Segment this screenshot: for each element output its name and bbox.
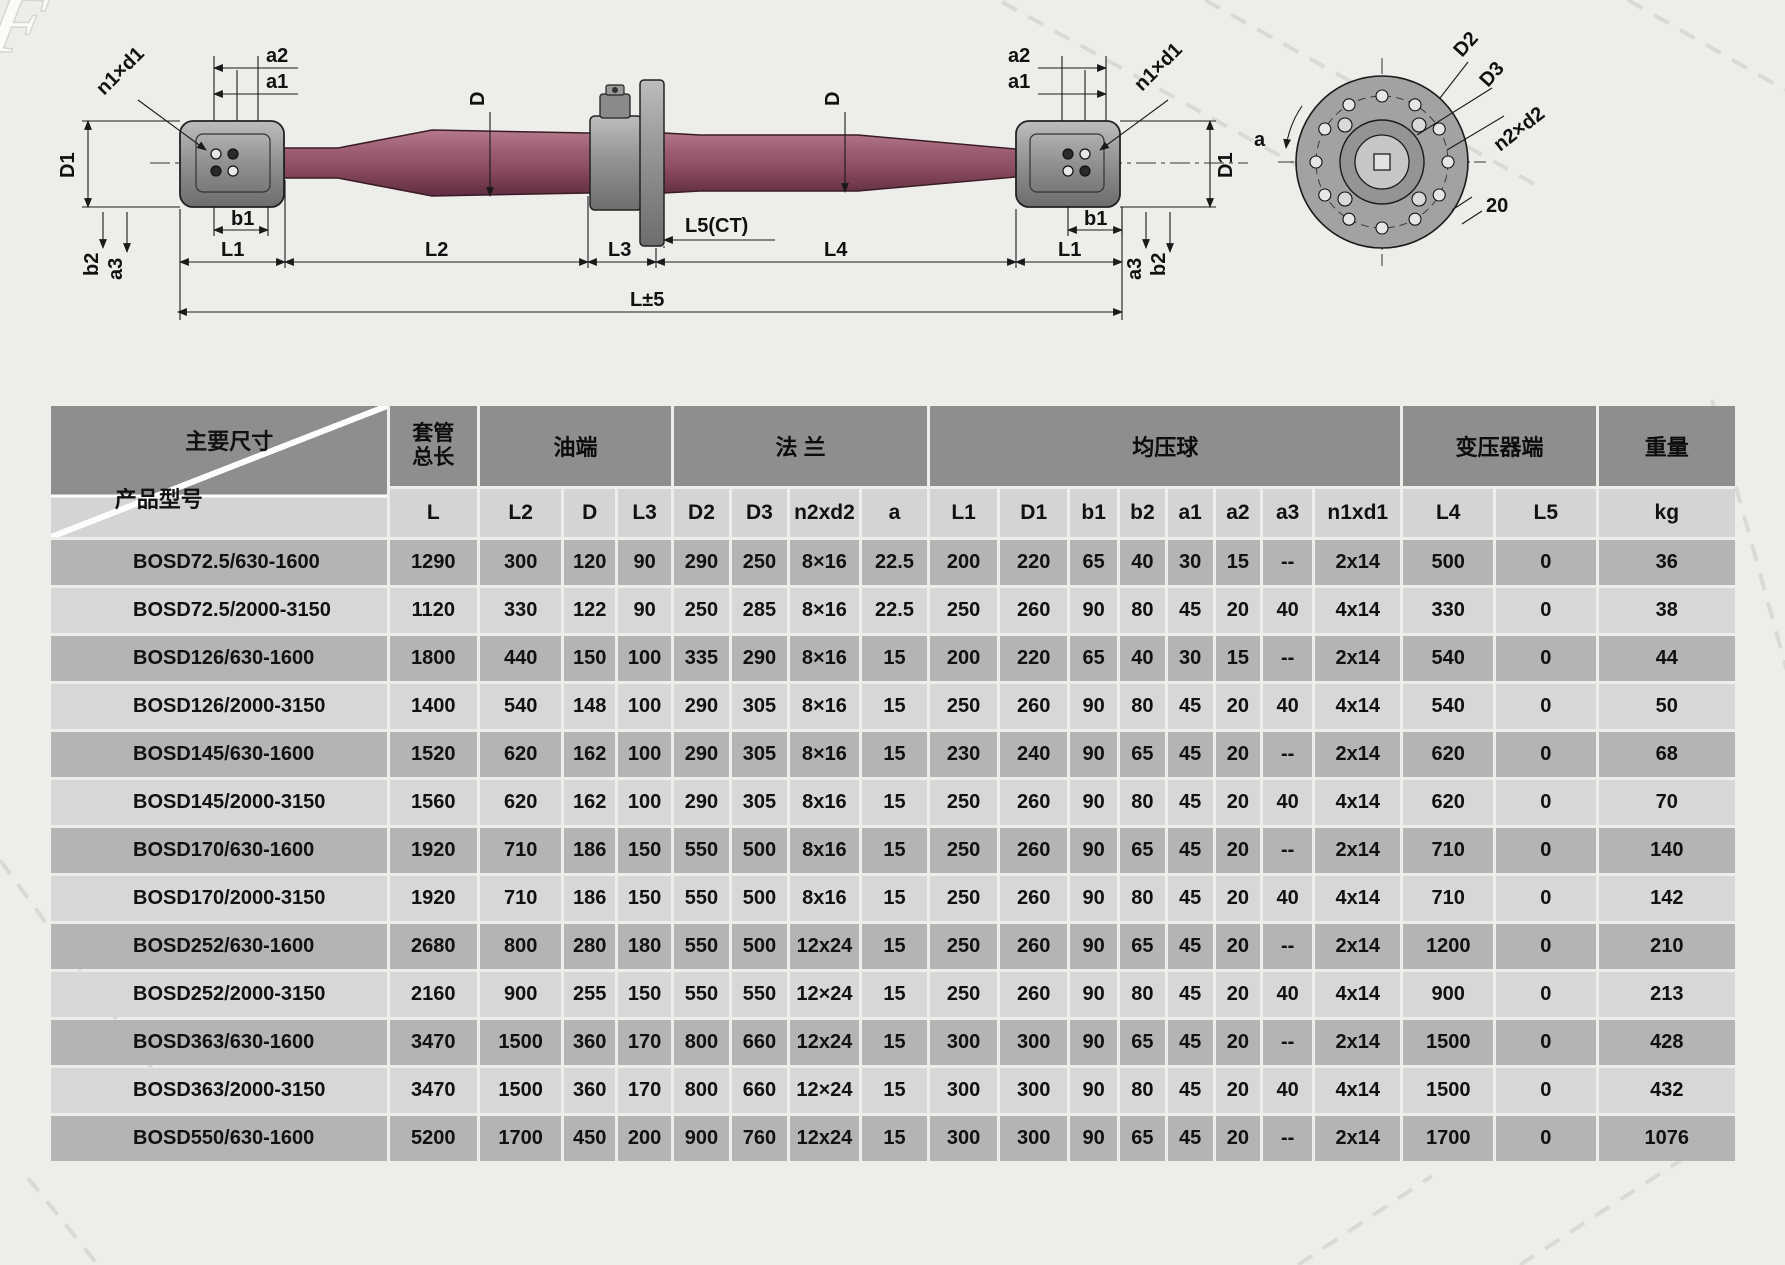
spec-value: -- [1263, 924, 1312, 969]
spec-value: 80 [1120, 1068, 1165, 1113]
spec-value: 4x14 [1315, 972, 1400, 1017]
spec-value: 15 [1216, 540, 1261, 585]
spec-value: 45 [1168, 972, 1213, 1017]
col-header-d: D [564, 489, 615, 537]
col-header-a1: a1 [1168, 489, 1213, 537]
col-header-l: L [390, 489, 477, 537]
spec-value: 90 [1070, 828, 1117, 873]
spec-value: 40 [1263, 972, 1312, 1017]
spec-value: 260 [1000, 924, 1067, 969]
product-model: BOSD126/2000-3150 [51, 684, 387, 729]
spec-value: 660 [732, 1068, 787, 1113]
col-header-l1: L1 [930, 489, 997, 537]
spec-value: 800 [480, 924, 561, 969]
corner-label-product-model: 产品型号 [115, 482, 203, 514]
spec-value: 8x16 [790, 780, 859, 825]
spec-value: 90 [1070, 1020, 1117, 1065]
spec-value: 1120 [390, 588, 477, 633]
spec-value: 22.5 [862, 588, 927, 633]
spec-value: 250 [930, 924, 997, 969]
dim-label-L2: L2 [425, 239, 448, 261]
table-row: BOSD550/630-16005200170045020090076012x2… [51, 1116, 1735, 1161]
product-model: BOSD72.5/2000-3150 [51, 588, 387, 633]
spec-value: 45 [1168, 1020, 1213, 1065]
flange-label-20: 20 [1486, 195, 1508, 217]
spec-value: -- [1263, 540, 1312, 585]
product-model: BOSD145/630-1600 [51, 732, 387, 777]
dim-label-a3-left: a3 [105, 258, 127, 280]
table-row: BOSD126/2000-315014005401481002903058×16… [51, 684, 1735, 729]
spec-value: 65 [1070, 540, 1117, 585]
dim-label-b1-right: b1 [1084, 208, 1107, 230]
product-model: BOSD363/630-1600 [51, 1020, 387, 1065]
spec-value: 12x24 [790, 924, 859, 969]
dim-label-a1-right: a1 [1008, 71, 1030, 93]
spec-value: 900 [1403, 972, 1492, 1017]
spec-value: 150 [564, 636, 615, 681]
spec-value: 40 [1263, 876, 1312, 921]
spec-value: 170 [618, 1068, 671, 1113]
col-header-d2: D2 [674, 489, 729, 537]
spec-value: 100 [618, 636, 671, 681]
spec-value: 260 [1000, 684, 1067, 729]
group-header-flange: 法 兰 [674, 406, 927, 486]
spec-value: -- [1263, 636, 1312, 681]
spec-value: 300 [1000, 1116, 1067, 1161]
spec-value: 45 [1168, 684, 1213, 729]
spec-value: 0 [1496, 684, 1596, 729]
spec-value: 250 [930, 588, 997, 633]
table-row: BOSD252/630-1600268080028018055050012x24… [51, 924, 1735, 969]
spec-value: 1520 [390, 732, 477, 777]
technical-drawing-area: a2 a1 n1×d1 D1 b2 a3 b1 L1 D D L2 L3 L5(… [0, 0, 1785, 395]
spec-value: 5200 [390, 1116, 477, 1161]
spec-value: 620 [1403, 780, 1492, 825]
col-header-l5: L5 [1496, 489, 1596, 537]
terminal-dot [612, 87, 618, 93]
spec-value: 0 [1496, 588, 1596, 633]
col-header-l4: L4 [1403, 489, 1492, 537]
flange-plate [640, 80, 664, 246]
spec-value: 300 [1000, 1068, 1067, 1113]
spec-value: 250 [930, 780, 997, 825]
col-header-l3: L3 [618, 489, 671, 537]
spec-value: 45 [1168, 780, 1213, 825]
spec-value: 550 [674, 828, 729, 873]
spec-value: 305 [732, 684, 787, 729]
spec-value: 80 [1120, 972, 1165, 1017]
spec-value: 550 [674, 924, 729, 969]
spec-value: 710 [1403, 876, 1492, 921]
dim-label-L5CT: L5(CT) [685, 215, 748, 237]
spec-value: 45 [1168, 876, 1213, 921]
spec-value: 40 [1263, 588, 1312, 633]
left-end-block [180, 121, 284, 207]
col-header-d1: D1 [1000, 489, 1067, 537]
spec-value: 1920 [390, 876, 477, 921]
spec-value: 255 [564, 972, 615, 1017]
spec-value: 210 [1599, 924, 1735, 969]
spec-value: 40 [1263, 780, 1312, 825]
spec-value: 20 [1216, 1068, 1261, 1113]
product-model: BOSD170/2000-3150 [51, 876, 387, 921]
spec-value: 0 [1496, 972, 1596, 1017]
spec-value: 15 [862, 684, 927, 729]
spec-value: 360 [564, 1068, 615, 1113]
spec-value: 15 [862, 1116, 927, 1161]
corner-header-cell: 主要尺寸 产品型号 [51, 406, 387, 537]
spec-value: 22.5 [862, 540, 927, 585]
spec-value: 450 [564, 1116, 615, 1161]
spec-value: 290 [732, 636, 787, 681]
spec-value: 2x14 [1315, 828, 1400, 873]
spec-value: 800 [674, 1068, 729, 1113]
spec-value: 220 [1000, 540, 1067, 585]
spec-value: 710 [480, 828, 561, 873]
spec-value: 440 [480, 636, 561, 681]
spec-value: 100 [618, 732, 671, 777]
spec-value: 150 [618, 876, 671, 921]
col-header-b1: b1 [1070, 489, 1117, 537]
spec-value: 500 [732, 924, 787, 969]
spec-value: 335 [674, 636, 729, 681]
spec-value: 8×16 [790, 540, 859, 585]
dim-label-a3-right: a3 [1124, 258, 1146, 280]
spec-value: 45 [1168, 924, 1213, 969]
col-header-b2: b2 [1120, 489, 1165, 537]
spec-value: 150 [618, 972, 671, 1017]
spec-value: 100 [618, 780, 671, 825]
spec-value: 290 [674, 684, 729, 729]
spec-value: 360 [564, 1020, 615, 1065]
spec-value: 2x14 [1315, 636, 1400, 681]
spec-value: 250 [930, 876, 997, 921]
flange-label-D3: D3 [1475, 58, 1508, 92]
spec-value: 15 [862, 780, 927, 825]
datasheet-page: { "page": { "background_color": "#edeeea… [0, 0, 1785, 1265]
spec-value: 68 [1599, 732, 1735, 777]
spec-value: 250 [930, 972, 997, 1017]
spec-value: 120 [564, 540, 615, 585]
spec-value: 300 [930, 1116, 997, 1161]
spec-value: 12x24 [790, 1020, 859, 1065]
spec-value: 15 [862, 636, 927, 681]
spec-value: 250 [930, 684, 997, 729]
table-row: BOSD170/2000-315019207101861505505008x16… [51, 876, 1735, 921]
spec-value: 300 [480, 540, 561, 585]
spec-value: 540 [1403, 636, 1492, 681]
spec-value: 90 [618, 588, 671, 633]
spec-value: -- [1263, 732, 1312, 777]
spec-value: 500 [732, 876, 787, 921]
spec-value: 44 [1599, 636, 1735, 681]
spec-value: 1500 [480, 1068, 561, 1113]
product-model: BOSD170/630-1600 [51, 828, 387, 873]
table-row: BOSD145/630-160015206201621002903058×161… [51, 732, 1735, 777]
spec-value: 8×16 [790, 732, 859, 777]
product-model: BOSD550/630-1600 [51, 1116, 387, 1161]
spec-value: 1700 [1403, 1116, 1492, 1161]
spec-value: 200 [618, 1116, 671, 1161]
spec-value: 620 [480, 780, 561, 825]
spec-value: 1076 [1599, 1116, 1735, 1161]
table-row: BOSD363/630-16003470150036017080066012x2… [51, 1020, 1735, 1065]
spec-value: 290 [674, 780, 729, 825]
spec-value: 162 [564, 780, 615, 825]
spec-value: 0 [1496, 1020, 1596, 1065]
spec-value: 2160 [390, 972, 477, 1017]
spec-value: 2x14 [1315, 924, 1400, 969]
spec-value: 260 [1000, 972, 1067, 1017]
spec-value: 45 [1168, 1116, 1213, 1161]
table-row: BOSD72.5/630-16001290300120902902508×162… [51, 540, 1735, 585]
spec-value: 3470 [390, 1020, 477, 1065]
dim-label-D-left: D [467, 92, 489, 106]
dim-label-n1xd1-right: n1×d1 [1130, 39, 1187, 96]
spec-value: 305 [732, 780, 787, 825]
spec-value: 0 [1496, 1068, 1596, 1113]
spec-value: 305 [732, 732, 787, 777]
spec-value: 20 [1216, 732, 1261, 777]
spec-value: 8×16 [790, 636, 859, 681]
spec-value: 500 [732, 828, 787, 873]
spec-value: 2680 [390, 924, 477, 969]
spec-value: 432 [1599, 1068, 1735, 1113]
spec-value: 710 [1403, 828, 1492, 873]
spec-value: 80 [1120, 684, 1165, 729]
spec-value: 900 [480, 972, 561, 1017]
spec-table-area: 主要尺寸 产品型号 套管 总长 油端 法 兰 均压球 变压器端 重量 LL2DL… [48, 403, 1785, 1164]
spec-value: 90 [1070, 924, 1117, 969]
spec-value: 0 [1496, 636, 1596, 681]
spec-value: 100 [618, 684, 671, 729]
spec-value: 20 [1216, 588, 1261, 633]
spec-value: 250 [674, 588, 729, 633]
spec-value: 2x14 [1315, 732, 1400, 777]
spec-value: 0 [1496, 828, 1596, 873]
spec-value: 90 [1070, 1068, 1117, 1113]
table-row: BOSD72.5/2000-31501120330122902502858×16… [51, 588, 1735, 633]
spec-value: 90 [1070, 876, 1117, 921]
spec-value: 1700 [480, 1116, 561, 1161]
spec-value: 620 [1403, 732, 1492, 777]
spec-value: 0 [1496, 1116, 1596, 1161]
spec-value: 250 [930, 828, 997, 873]
spec-value: 2x14 [1315, 1020, 1400, 1065]
spec-value: 2x14 [1315, 540, 1400, 585]
terminal-box [600, 94, 630, 118]
col-header-n2xd2: n2xd2 [790, 489, 859, 537]
spec-value: 65 [1120, 828, 1165, 873]
spec-value: 300 [930, 1068, 997, 1113]
col-header-a: a [862, 489, 927, 537]
spec-value: 8×16 [790, 684, 859, 729]
spec-value: 1500 [480, 1020, 561, 1065]
spec-value: 65 [1120, 732, 1165, 777]
spec-value: 800 [674, 1020, 729, 1065]
spec-value: 290 [674, 732, 729, 777]
dim-label-L4: L4 [824, 239, 848, 261]
col-header-l2: L2 [480, 489, 561, 537]
spec-value: 90 [1070, 780, 1117, 825]
spec-value: 15 [862, 1068, 927, 1113]
flange-front-view: D2 D3 n2×d2 a 20 [1254, 28, 1549, 266]
group-header-casing-length: 套管 总长 [390, 406, 477, 486]
spec-value: 12×24 [790, 972, 859, 1017]
table-row: BOSD363/2000-31503470150036017080066012×… [51, 1068, 1735, 1113]
spec-value: 540 [1403, 684, 1492, 729]
table-row: BOSD170/630-160019207101861505505008x161… [51, 828, 1735, 873]
flange-sleeve [590, 116, 642, 210]
spec-value: 20 [1216, 780, 1261, 825]
spec-value: 15 [862, 828, 927, 873]
dim-label-a2-right: a2 [1008, 45, 1030, 67]
spec-value: 20 [1216, 972, 1261, 1017]
dim-label-a1-left: a1 [266, 71, 288, 93]
product-model: BOSD252/2000-3150 [51, 972, 387, 1017]
spec-value: 4x14 [1315, 684, 1400, 729]
dim-label-b1-left: b1 [231, 208, 254, 230]
spec-value: 200 [930, 540, 997, 585]
spec-value: 142 [1599, 876, 1735, 921]
spec-value: 300 [930, 1020, 997, 1065]
spec-value: 180 [618, 924, 671, 969]
dim-label-L1-right: L1 [1058, 239, 1081, 261]
spec-value: 80 [1120, 876, 1165, 921]
col-header-n1xd1: n1xd1 [1315, 489, 1400, 537]
group-header-transformer-end: 变压器端 [1403, 406, 1595, 486]
spec-value: 280 [564, 924, 615, 969]
table-row: BOSD126/630-160018004401501003352908×161… [51, 636, 1735, 681]
dim-label-b2-right: b2 [1148, 253, 1170, 276]
dim-label-n1xd1-left: n1×d1 [92, 43, 149, 100]
spec-value: 710 [480, 876, 561, 921]
spec-value: 550 [674, 972, 729, 1017]
spec-value: 1500 [1403, 1068, 1492, 1113]
dim-label-D-right: D [822, 92, 844, 106]
flange-label-a: a [1254, 129, 1266, 151]
spec-value: 20 [1216, 1116, 1261, 1161]
spec-value: 760 [732, 1116, 787, 1161]
flange-center-hole [1374, 154, 1390, 170]
spec-value: 8x16 [790, 828, 859, 873]
spec-value: 0 [1496, 732, 1596, 777]
spec-value: 15 [862, 1020, 927, 1065]
spec-value: 4x14 [1315, 1068, 1400, 1113]
spec-value: 65 [1120, 1116, 1165, 1161]
spec-value: 40 [1120, 540, 1165, 585]
spec-value: 90 [1070, 684, 1117, 729]
spec-value: 40 [1120, 636, 1165, 681]
right-end-block [1016, 121, 1120, 207]
spec-value: 330 [480, 588, 561, 633]
dim-label-a2-left: a2 [266, 45, 288, 67]
spec-value: 30 [1168, 540, 1213, 585]
spec-value: 80 [1120, 780, 1165, 825]
dim-label-L-total: L±5 [630, 289, 664, 311]
product-model: BOSD252/630-1600 [51, 924, 387, 969]
spec-value: 620 [480, 732, 561, 777]
table-row: BOSD252/2000-3150216090025515055055012×2… [51, 972, 1735, 1017]
flange-label-n2xd2: n2×d2 [1490, 103, 1550, 156]
spec-value: 250 [732, 540, 787, 585]
spec-value: 550 [732, 972, 787, 1017]
spec-value: 1800 [390, 636, 477, 681]
product-model: BOSD126/630-1600 [51, 636, 387, 681]
spec-value: 15 [862, 924, 927, 969]
spec-value: 220 [1000, 636, 1067, 681]
spec-value: 8×16 [790, 588, 859, 633]
spec-value: 230 [930, 732, 997, 777]
spec-value: 45 [1168, 732, 1213, 777]
spec-value: 428 [1599, 1020, 1735, 1065]
spec-value: 0 [1496, 540, 1596, 585]
spec-value: 900 [674, 1116, 729, 1161]
spec-value: 162 [564, 732, 615, 777]
spec-value: 15 [862, 972, 927, 1017]
group-header-row: 主要尺寸 产品型号 套管 总长 油端 法 兰 均压球 变压器端 重量 [51, 406, 1735, 486]
spec-value: 70 [1599, 780, 1735, 825]
spec-value: 4x14 [1315, 876, 1400, 921]
spec-value: 8x16 [790, 876, 859, 921]
spec-value: 90 [618, 540, 671, 585]
dim-label-D1-right: D1 [1215, 152, 1237, 178]
spec-value: 15 [1216, 636, 1261, 681]
spec-value: 1400 [390, 684, 477, 729]
spec-value: 122 [564, 588, 615, 633]
spec-value: 20 [1216, 924, 1261, 969]
spec-value: 30 [1168, 636, 1213, 681]
spec-value: 40 [1263, 1068, 1312, 1113]
spec-value: 240 [1000, 732, 1067, 777]
spec-value: 550 [674, 876, 729, 921]
spec-value: 200 [930, 636, 997, 681]
spec-value: 213 [1599, 972, 1735, 1017]
spec-value: 38 [1599, 588, 1735, 633]
spec-value: 285 [732, 588, 787, 633]
spec-value: 150 [618, 828, 671, 873]
spec-value: 170 [618, 1020, 671, 1065]
spec-value: 540 [480, 684, 561, 729]
spec-value: 65 [1120, 1020, 1165, 1065]
spec-value: 4x14 [1315, 780, 1400, 825]
col-header-d3: D3 [732, 489, 787, 537]
spec-value: 65 [1120, 924, 1165, 969]
spec-value: 1920 [390, 828, 477, 873]
spec-value: 20 [1216, 828, 1261, 873]
spec-value: 4x14 [1315, 588, 1400, 633]
spec-value: 20 [1216, 1020, 1261, 1065]
spec-value: -- [1263, 828, 1312, 873]
col-header-a2: a2 [1216, 489, 1261, 537]
spec-value: 12x24 [790, 1116, 859, 1161]
spec-value: 186 [564, 876, 615, 921]
spec-value: 90 [1070, 972, 1117, 1017]
dim-label-L1-left: L1 [221, 239, 244, 261]
group-casing-line2: 总长 [390, 446, 477, 470]
spec-value: 260 [1000, 588, 1067, 633]
spec-value: 0 [1496, 780, 1596, 825]
spec-value: -- [1263, 1020, 1312, 1065]
spec-value: 3470 [390, 1068, 477, 1113]
spec-value: 12×24 [790, 1068, 859, 1113]
spec-value: 36 [1599, 540, 1735, 585]
spec-value: 0 [1496, 876, 1596, 921]
corner-label-main-dimensions: 主要尺寸 [185, 424, 273, 456]
spec-value: 290 [674, 540, 729, 585]
product-model: BOSD72.5/630-1600 [51, 540, 387, 585]
spec-value: 330 [1403, 588, 1492, 633]
